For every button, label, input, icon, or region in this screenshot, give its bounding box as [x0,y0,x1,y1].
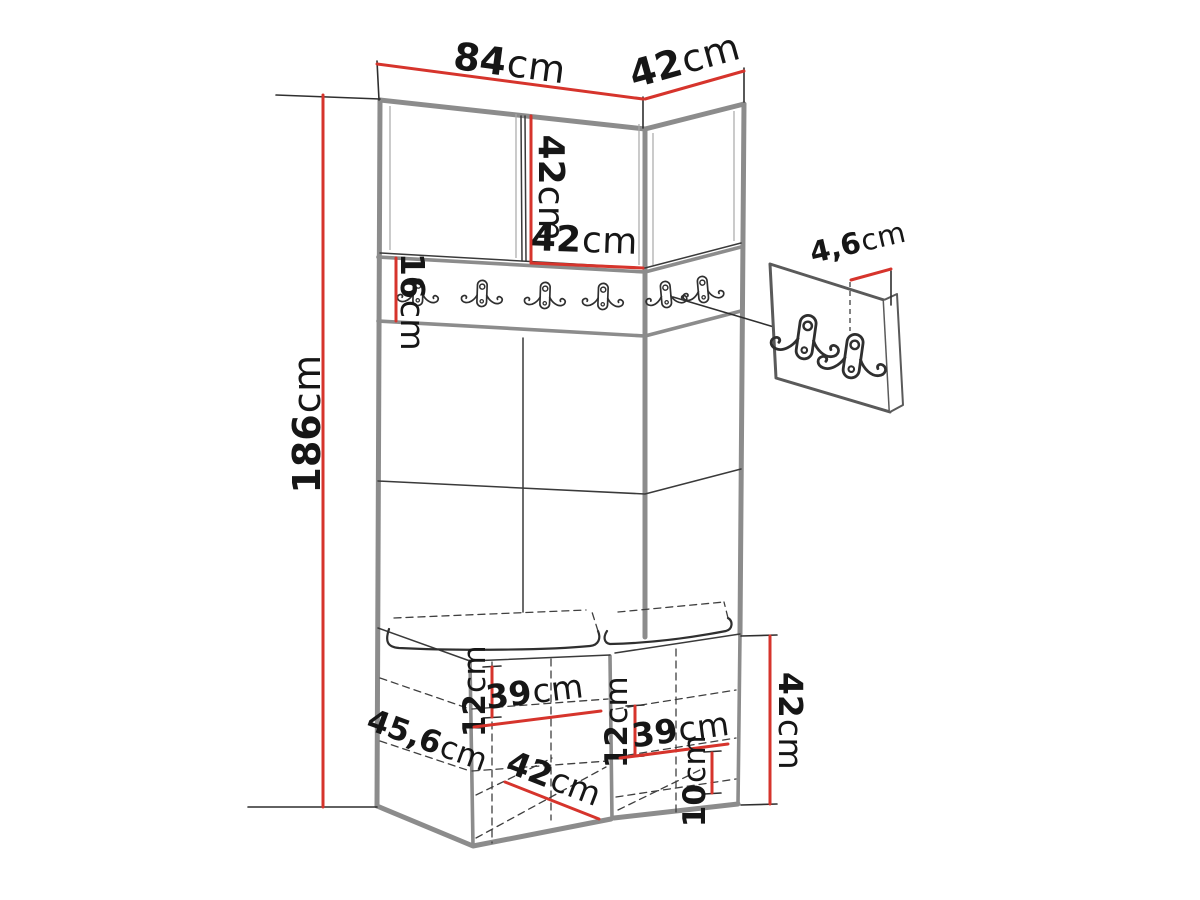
dim-total-height-label: 186cm [285,354,329,493]
dim-bench-bottom-width-label: 42cm [501,742,607,814]
right-cushion-side-edge [724,602,728,618]
dim-bench-height-label: 42cm [771,672,810,770]
right-edge [740,104,744,634]
dim-hook-rail-height: 16cm [393,253,432,351]
dim-total-height: 186cm [248,95,380,807]
dim-bench-clearance-label: 10cm [677,735,713,827]
left-cushion-side-edge [592,612,598,631]
dimensions: 186cm 84cm 42cm 42cm 42cm 16cm [248,24,909,827]
coat-hook-icon [582,283,624,311]
dim-bench-height: 42cm [741,635,810,805]
diagram-page: 186cm 84cm 42cm 42cm 42cm 16cm [0,0,1200,900]
right-cushion-front-edge [605,618,732,644]
left-cushion-front-edge [387,629,599,650]
dimension-line [851,269,891,280]
extension-line [741,804,777,805]
dim-top-depth: 42cm [624,24,744,102]
extension-line [377,61,379,100]
coat-hook-icon [461,280,503,308]
dim-hook-rail-height-label: 16cm [393,253,432,351]
wall-panel-seam-horizontal [378,469,741,494]
dim-bench-clearance: 10cm [677,735,721,827]
bench-right-edge [738,634,740,804]
dim-bench-right-width: 39cm [620,704,732,758]
coat-hook-icon [644,280,687,310]
extension-line [276,95,380,99]
coat-hook-rail [397,275,724,311]
dim-top-width-label: 84cm [451,34,569,92]
bench-bottom-left-edge [377,806,611,846]
dim-bench-bottom-width: 42cm [501,742,607,819]
cabinet-door-gap-left [521,116,522,261]
dim-hook-panel-thickness-label: 4,6cm [806,215,909,270]
hook-panel-face [770,264,890,412]
top-edge [380,100,744,129]
coat-hook-icon [524,282,566,310]
dim-bench-left-width-label: 39cm [483,666,585,717]
left-edge [377,100,380,806]
right-cushion-back-edge [618,602,724,612]
dim-upper-cabinet-door-width-label: 42cm [530,218,638,263]
extension-line [741,635,777,636]
furniture-dimension-diagram: 186cm 84cm 42cm 42cm 42cm 16cm [0,0,1200,900]
left-cushion-back-edge [394,610,586,618]
dim-upper-cabinet-door-width: 42cm [530,218,643,268]
coat-hook-icon [681,275,724,305]
dim-top-depth-label: 42cm [624,24,744,97]
cabinet-door-gap-right [525,116,526,261]
